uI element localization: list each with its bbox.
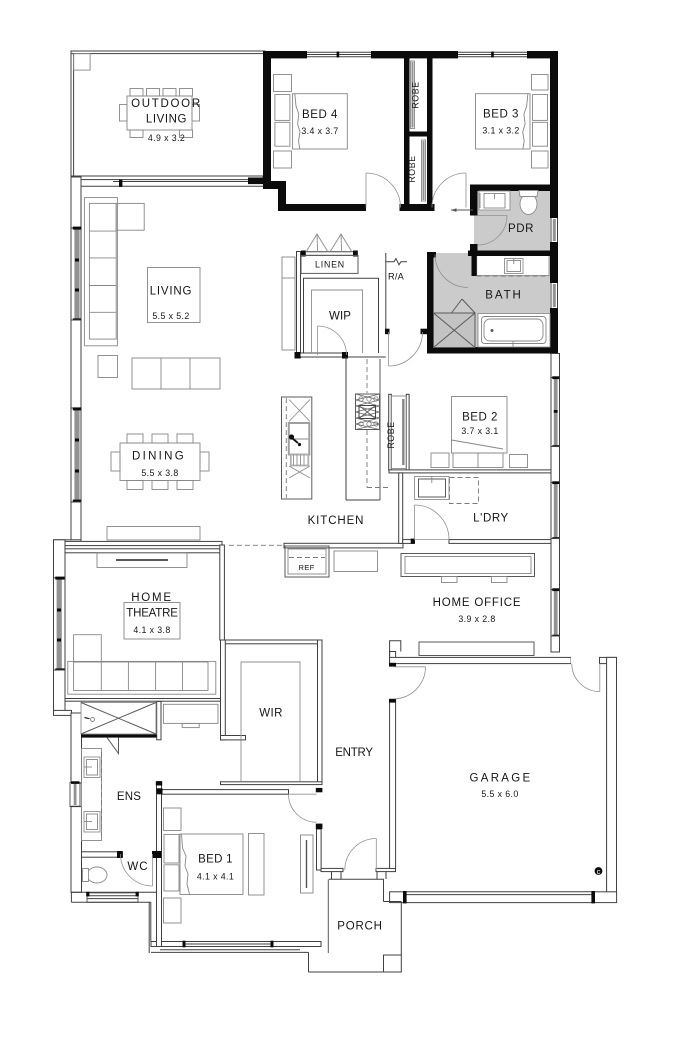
- svg-text:4.1 x 4.1: 4.1 x 4.1: [197, 872, 234, 882]
- svg-text:HOME OFFICE: HOME OFFICE: [433, 597, 522, 609]
- svg-text:REF: REF: [298, 563, 314, 572]
- svg-text:LIVING: LIVING: [150, 286, 193, 298]
- svg-text:3.7 x 3.1: 3.7 x 3.1: [461, 426, 498, 436]
- svg-text:WC: WC: [127, 861, 148, 873]
- svg-text:5.5 x 6.0: 5.5 x 6.0: [481, 789, 518, 799]
- svg-text:OUTDOOR: OUTDOOR: [131, 98, 202, 110]
- svg-text:ROBE: ROBE: [386, 421, 396, 448]
- svg-text:WIP: WIP: [329, 311, 351, 323]
- svg-text:PDR: PDR: [508, 223, 534, 235]
- svg-text:BED 2: BED 2: [462, 412, 498, 424]
- svg-text:GARAGE: GARAGE: [469, 773, 532, 785]
- svg-text:WIR: WIR: [259, 708, 283, 720]
- svg-text:BED 3: BED 3: [483, 109, 519, 121]
- svg-text:THEATRE: THEATRE: [126, 608, 178, 620]
- svg-text:L'DRY: L'DRY: [473, 513, 509, 525]
- svg-text:BATH: BATH: [485, 290, 522, 302]
- svg-text:5.5 x 3.8: 5.5 x 3.8: [141, 468, 178, 478]
- svg-text:ROBE: ROBE: [411, 81, 421, 108]
- svg-text:LIVING: LIVING: [146, 114, 187, 126]
- svg-text:4.1 x 3.8: 4.1 x 3.8: [133, 625, 170, 635]
- svg-text:4.9 x 3.2: 4.9 x 3.2: [148, 133, 185, 143]
- svg-text:R/A: R/A: [388, 272, 405, 282]
- svg-text:5.5 x 5.2: 5.5 x 5.2: [152, 311, 189, 321]
- svg-text:3.1 x 3.2: 3.1 x 3.2: [482, 126, 519, 136]
- svg-text:3.4 x 3.7: 3.4 x 3.7: [301, 126, 338, 136]
- svg-text:c: c: [597, 867, 601, 876]
- svg-text:3.9 x 2.8: 3.9 x 2.8: [458, 614, 495, 624]
- svg-text:HOME: HOME: [131, 592, 173, 604]
- svg-text:KITCHEN: KITCHEN: [308, 515, 365, 527]
- svg-text:DINING: DINING: [132, 451, 186, 463]
- svg-text:LINEN: LINEN: [315, 260, 345, 270]
- svg-text:ROBE: ROBE: [407, 155, 417, 182]
- svg-text:PORCH: PORCH: [337, 921, 383, 933]
- svg-text:ENS: ENS: [117, 791, 141, 803]
- svg-text:BED 1: BED 1: [198, 854, 233, 866]
- svg-text:BED 4: BED 4: [302, 109, 338, 121]
- svg-text:ENTRY: ENTRY: [335, 747, 373, 759]
